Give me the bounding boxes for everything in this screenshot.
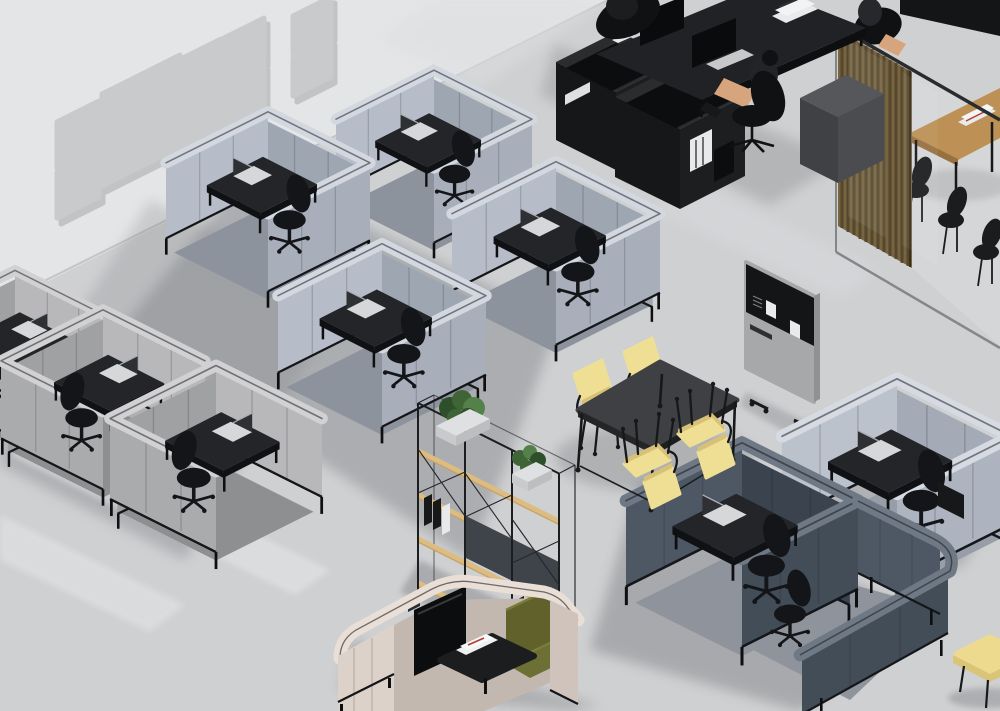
glass-reflection (902, 72, 938, 266)
office-isometric-render (0, 0, 1000, 711)
office-render-stage (0, 0, 1000, 711)
person-head (762, 50, 778, 66)
